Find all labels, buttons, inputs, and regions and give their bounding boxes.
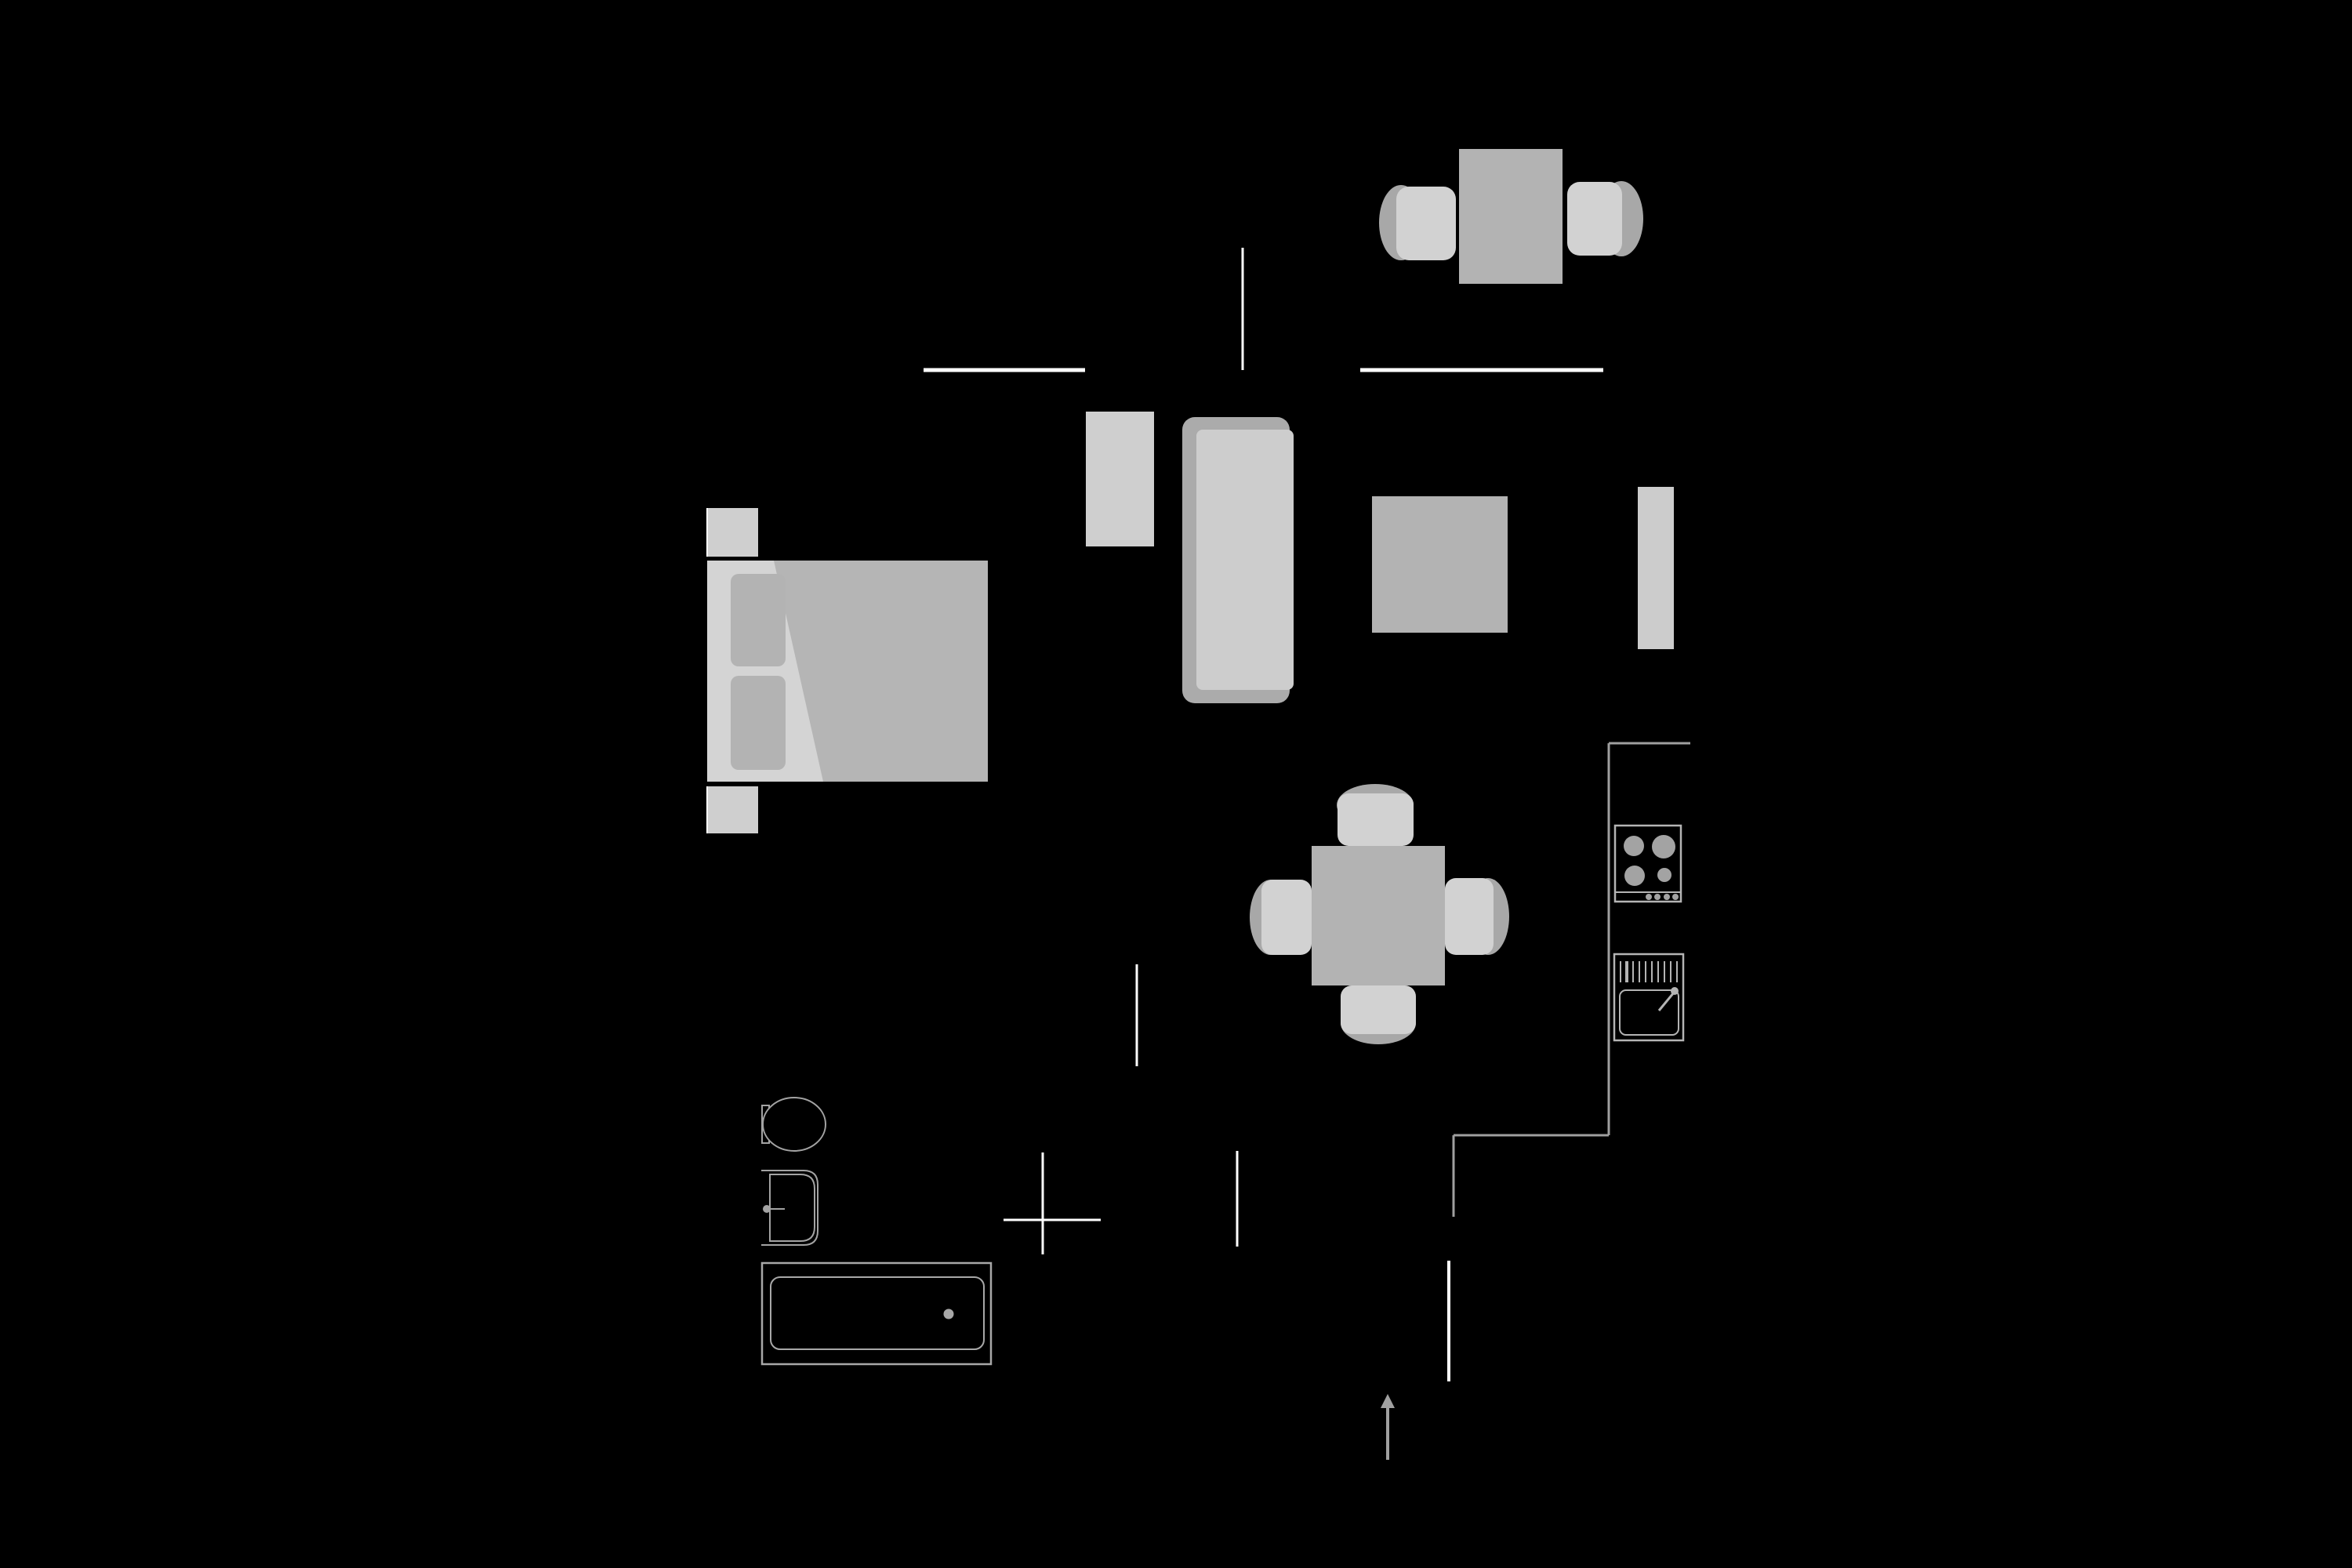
stove-burner-3 — [1624, 866, 1645, 886]
toilet-bowl — [763, 1098, 826, 1151]
kitchen-sink-outline — [1614, 954, 1683, 1040]
stove-burner-2 — [1652, 835, 1675, 858]
sink-faucet-dot — [1671, 987, 1679, 995]
entrance-arrow-head — [1381, 1394, 1395, 1408]
sofa-seat — [1196, 430, 1294, 690]
coffee-table — [1372, 496, 1508, 633]
stove-knob-2 — [1654, 894, 1661, 900]
dining-table — [1312, 846, 1445, 985]
floor-plan-canvas — [0, 0, 2352, 1568]
bath-sink-inner — [770, 1174, 815, 1241]
dining-stool-top — [1338, 793, 1414, 846]
stove-knob-1 — [1646, 894, 1652, 900]
balcony-table — [1459, 149, 1563, 284]
stove-knob-3 — [1664, 894, 1670, 900]
stove-outline — [1615, 826, 1681, 902]
dining-stool-left — [1261, 880, 1312, 955]
dresser — [1086, 412, 1154, 546]
stove-burner-1 — [1624, 836, 1644, 856]
tv-unit — [1638, 487, 1674, 649]
balcony-stool-right — [1567, 182, 1622, 256]
dining-stool-right — [1445, 878, 1494, 955]
stove-knob-4 — [1672, 894, 1679, 900]
bed-pillow-top — [731, 574, 786, 666]
nightstand-bottom — [707, 786, 758, 833]
stove-burner-4 — [1657, 868, 1671, 882]
sink-faucet-line — [1659, 993, 1674, 1011]
dining-stool-bottom — [1341, 985, 1416, 1034]
floor-plan-svg — [0, 0, 2352, 1568]
bathtub-drain — [944, 1309, 954, 1319]
bed-pillow-bottom — [731, 676, 786, 770]
nightstand-top — [707, 508, 758, 557]
balcony-stool-left — [1396, 187, 1456, 260]
